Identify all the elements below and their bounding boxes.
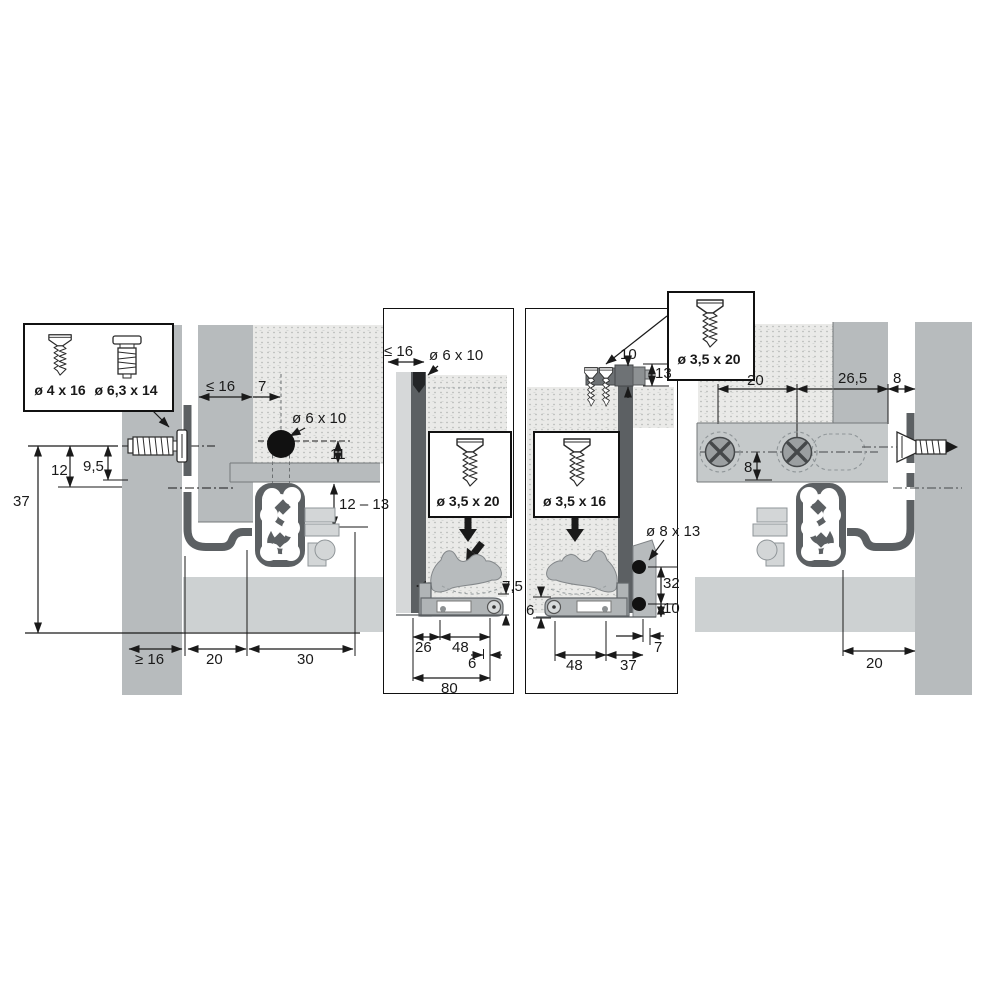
- dim-label-8-holes: 8: [744, 460, 752, 477]
- dim-label-11: 11: [330, 447, 346, 464]
- dim-label-48-box1: 48: [452, 640, 469, 657]
- callout-screws-drawing: [25, 325, 172, 385]
- latch-outline-left: [305, 508, 339, 566]
- dim-label-7-box2: 7: [654, 640, 662, 657]
- wall-screw-horizontal: [897, 432, 958, 462]
- hole-label-left: ø 6 x 10: [292, 411, 346, 428]
- dim-label-8-gap: 8: [893, 371, 901, 388]
- latch-outline-right: [753, 508, 787, 566]
- dim-label-13: 13: [655, 366, 672, 383]
- dim-label-30: 30: [297, 652, 314, 669]
- pin-label-8x13: ø 8 x 13: [646, 524, 700, 541]
- screw-label-6-3x14: ø 6,3 x 14: [88, 383, 164, 398]
- drill-hole-6x10: [267, 430, 295, 458]
- dim-label-37-box2: 37: [620, 658, 637, 675]
- rail-profile-cross-section-left: [259, 487, 302, 564]
- screw-label-3-5x16: ø 3,5 x 16: [533, 494, 616, 509]
- rail-hook-left: [188, 405, 253, 547]
- dim-label-12-13: 12 – 13: [339, 497, 389, 514]
- screw-callout-box-right: [667, 291, 755, 381]
- dim-label-7-left: 7: [258, 379, 266, 396]
- screw-label-3-5x20-callout: ø 3,5 x 20: [671, 352, 747, 367]
- rail-profile-cross-section-right: [800, 487, 843, 564]
- dim-label-le16-left: ≤ 16: [206, 379, 235, 396]
- screw-label-3-5x20: ø 3,5 x 20: [428, 494, 508, 509]
- dim-label-9-5: 9,5: [83, 459, 104, 476]
- dim-label-6-box2: 6: [526, 603, 534, 620]
- dim-label-48-box2: 48: [566, 658, 583, 675]
- dim-label-20-right-top: 20: [747, 373, 764, 390]
- screw-label-4x16: ø 4 x 16: [29, 383, 91, 398]
- euro-screw-vertical: [113, 336, 141, 378]
- dim-label-10-bottom: 10: [663, 601, 680, 618]
- dim-label-20-right-bottom: 20: [866, 656, 883, 673]
- dim-label-12: 12: [51, 463, 68, 480]
- detail-box-left-drawing: [388, 362, 509, 681]
- dim-label-32: 32: [663, 576, 680, 593]
- dim-label-ge16: ≥ 16: [135, 652, 164, 669]
- hole-label-box1: ø 6 x 10: [429, 348, 483, 365]
- dim-label-10-top: 10: [620, 347, 637, 364]
- dim-label-le16-box1: ≤ 16: [384, 344, 413, 361]
- dim-label-7-5: 7,5: [502, 579, 523, 596]
- dim-label-6-box1: 6: [468, 656, 476, 673]
- installation-diagram: ø 4 x 16 ø 6,3 x 14 ø 3,5 x 20 ø 3,5 x 2…: [0, 0, 1000, 1000]
- dim-label-26: 26: [415, 640, 432, 657]
- euro-screw-horizontal: [128, 430, 187, 462]
- dim-label-37: 37: [13, 494, 30, 511]
- screw-callout-box-left: [23, 323, 174, 412]
- dim-label-20-left: 20: [206, 652, 223, 669]
- dim-label-26-5: 26,5: [838, 371, 867, 388]
- dim-label-80: 80: [441, 681, 458, 698]
